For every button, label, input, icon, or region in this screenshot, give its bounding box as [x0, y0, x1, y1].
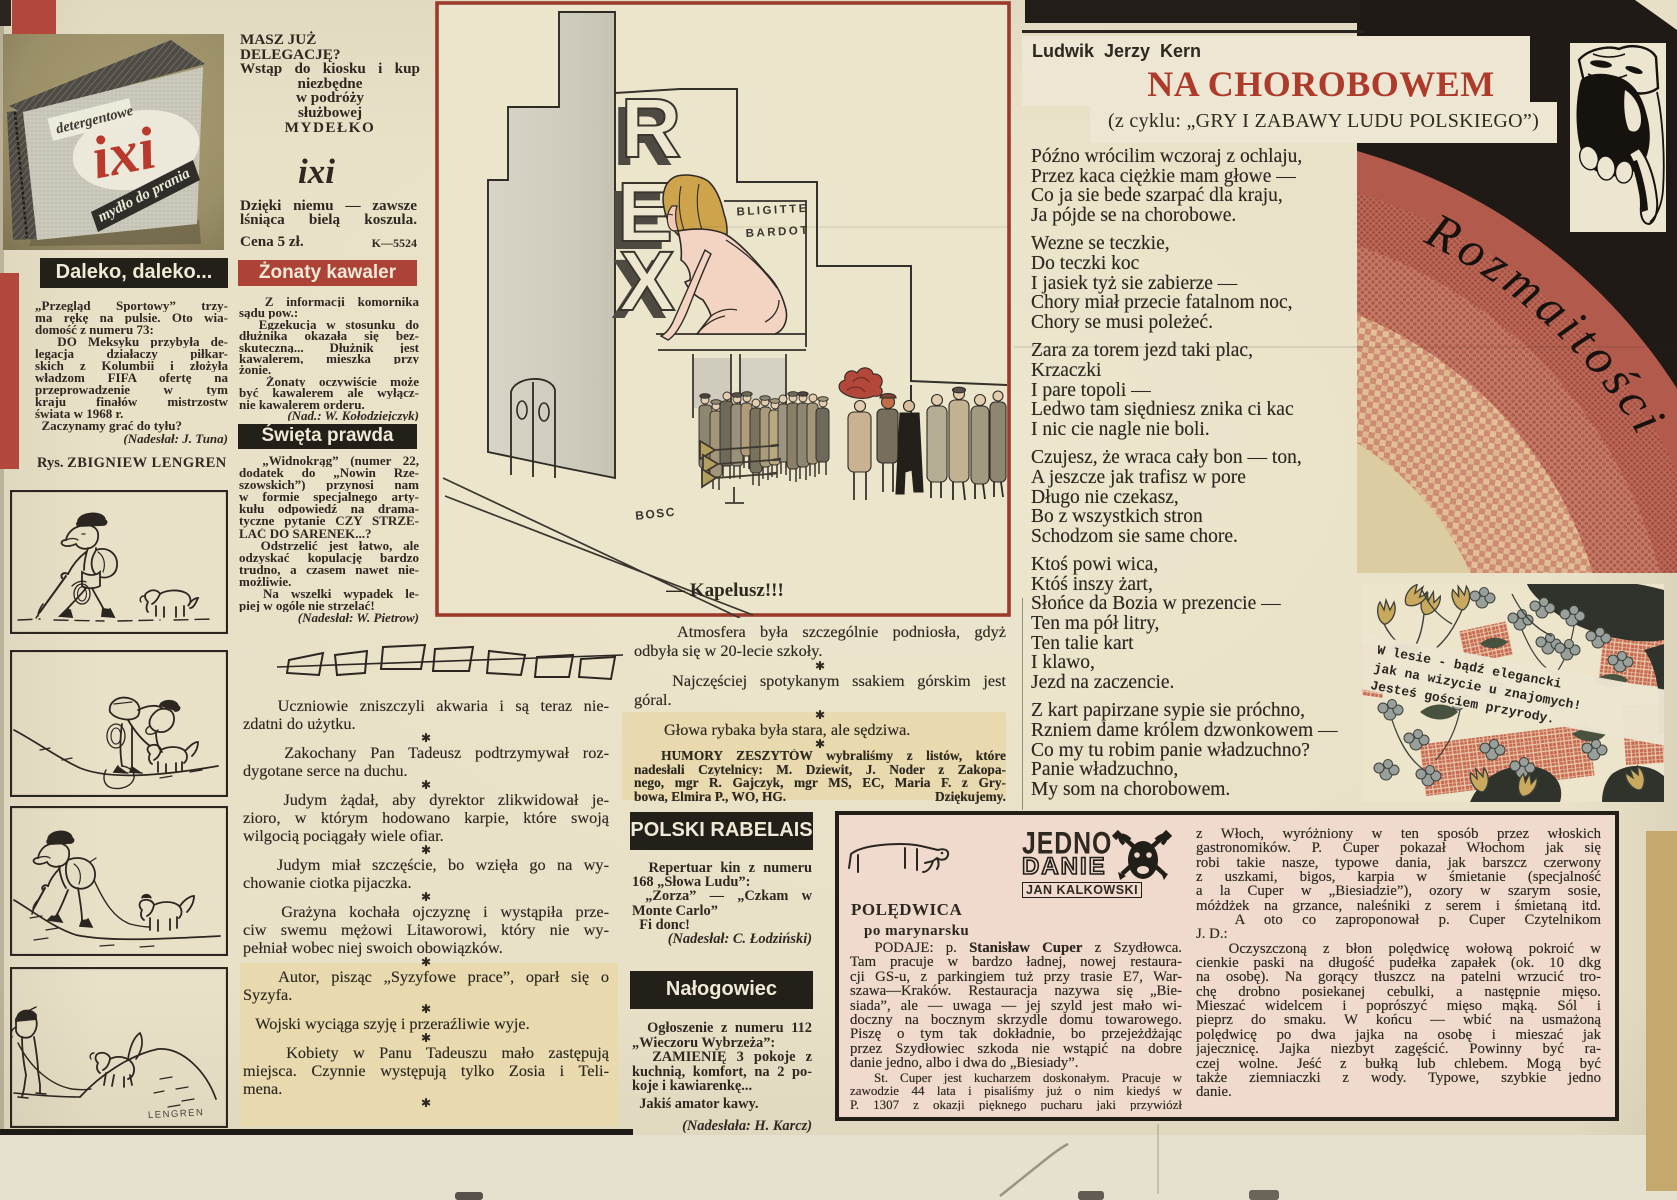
- svg-text:LENGREN: LENGREN: [148, 1107, 205, 1121]
- svg-text:R: R: [621, 81, 682, 175]
- svg-text:X: X: [619, 234, 675, 328]
- svg-text:ixi: ixi: [86, 114, 161, 191]
